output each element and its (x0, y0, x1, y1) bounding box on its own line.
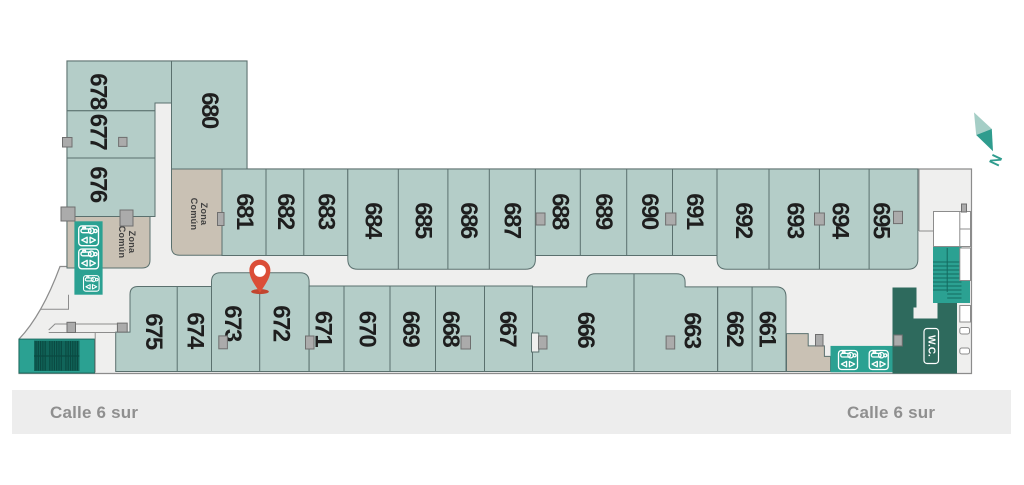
svg-text:685: 685 (410, 202, 437, 239)
svg-text:693: 693 (782, 202, 809, 239)
svg-text:W.C.: W.C. (926, 335, 937, 357)
svg-text:689: 689 (590, 193, 617, 230)
svg-text:662: 662 (721, 311, 748, 348)
svg-text:672: 672 (268, 305, 295, 342)
svg-text:661: 661 (754, 311, 781, 348)
svg-text:690: 690 (636, 193, 663, 230)
svg-text:N: N (985, 151, 1005, 168)
svg-text:681: 681 (231, 193, 258, 230)
svg-text:Calle 6 sur: Calle 6 sur (847, 403, 935, 422)
svg-text:666: 666 (572, 312, 599, 349)
svg-text:Calle 6 sur: Calle 6 sur (50, 403, 138, 422)
svg-text:687: 687 (499, 202, 526, 239)
svg-text:670: 670 (354, 311, 381, 348)
svg-text:676: 676 (85, 166, 112, 203)
svg-text:684: 684 (360, 202, 387, 240)
svg-text:667: 667 (494, 311, 521, 348)
svg-text:695: 695 (868, 202, 895, 239)
svg-text:677: 677 (85, 114, 112, 151)
svg-text:668: 668 (437, 311, 464, 348)
svg-text:692: 692 (730, 202, 757, 239)
svg-text:691: 691 (681, 193, 708, 230)
svg-text:663: 663 (679, 312, 706, 349)
svg-text:682: 682 (272, 193, 299, 230)
svg-text:694: 694 (827, 202, 854, 240)
svg-text:683: 683 (313, 193, 340, 230)
svg-text:675: 675 (140, 313, 167, 350)
svg-text:686: 686 (455, 202, 482, 239)
svg-text:680: 680 (196, 92, 223, 129)
svg-text:669: 669 (397, 311, 424, 348)
svg-text:674: 674 (181, 312, 208, 350)
svg-text:688: 688 (547, 193, 574, 230)
svg-text:678: 678 (85, 73, 112, 110)
